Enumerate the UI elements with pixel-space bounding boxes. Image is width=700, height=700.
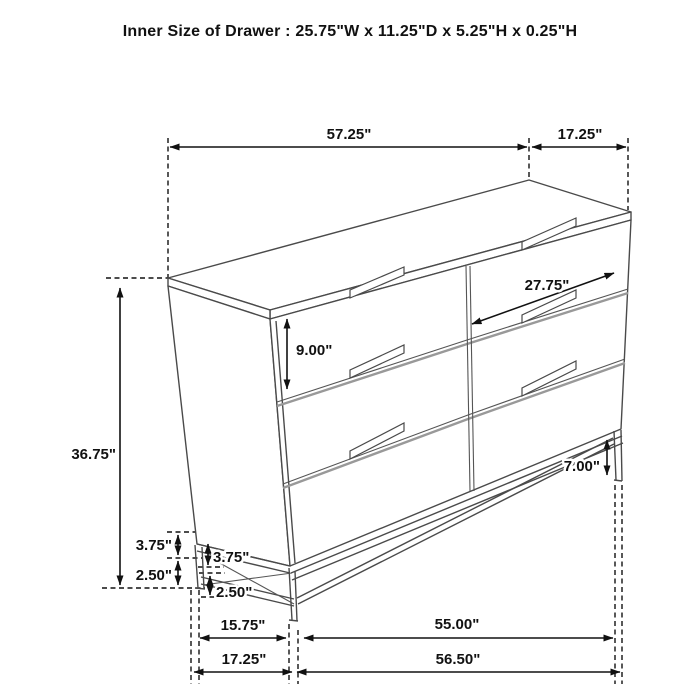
dimension-leg-lower-front-label: 2.50" — [216, 584, 252, 601]
page-title: Inner Size of Drawer : 25.75"W x 11.25"D… — [123, 23, 578, 40]
dimension-drawer-width-label: 27.75" — [525, 277, 570, 294]
dimension-base-height-label: 7.00" — [564, 458, 600, 475]
dresser-dimension-drawing: Inner Size of Drawer : 25.75"W x 11.25"D… — [0, 0, 700, 700]
dimension-leg-lower-back-label: 2.50" — [136, 567, 172, 584]
dimension-base-side-inner-label: 15.75" — [221, 617, 266, 634]
dimension-overall-height: 36.75" — [71, 288, 120, 585]
dimension-base-front-outer: 56.50" — [297, 651, 620, 672]
dimension-leg-upper-front-label: 3.75" — [213, 549, 249, 566]
dimension-base-side-outer: 17.25" — [194, 651, 292, 672]
dimension-top-width-label: 57.25" — [327, 126, 372, 143]
dimension-base-side-outer-label: 17.25" — [222, 651, 267, 668]
dimension-base-front-inner: 55.00" — [304, 616, 613, 638]
dimension-top-depth: 17.25" — [532, 126, 626, 147]
dimension-base-front-inner-label: 55.00" — [435, 616, 480, 633]
front-left-leg — [289, 568, 298, 621]
dimension-top-width: 57.25" — [170, 126, 527, 147]
dimension-base-side-inner: 15.75" — [200, 617, 286, 638]
dimension-diagram-page: Inner Size of Drawer : 25.75"W x 11.25"D… — [0, 0, 700, 700]
dimension-leg-upper-back: 3.75" — [136, 535, 178, 555]
dimension-top-depth-label: 17.25" — [558, 126, 603, 143]
dimension-leg-upper-back-label: 3.75" — [136, 537, 172, 554]
dimension-leg-lower-back: 2.50" — [136, 561, 178, 585]
dimension-base-front-outer-label: 56.50" — [436, 651, 481, 668]
dimension-overall-height-label: 36.75" — [71, 446, 116, 463]
dimension-drawer-height-label: 9.00" — [296, 342, 332, 359]
